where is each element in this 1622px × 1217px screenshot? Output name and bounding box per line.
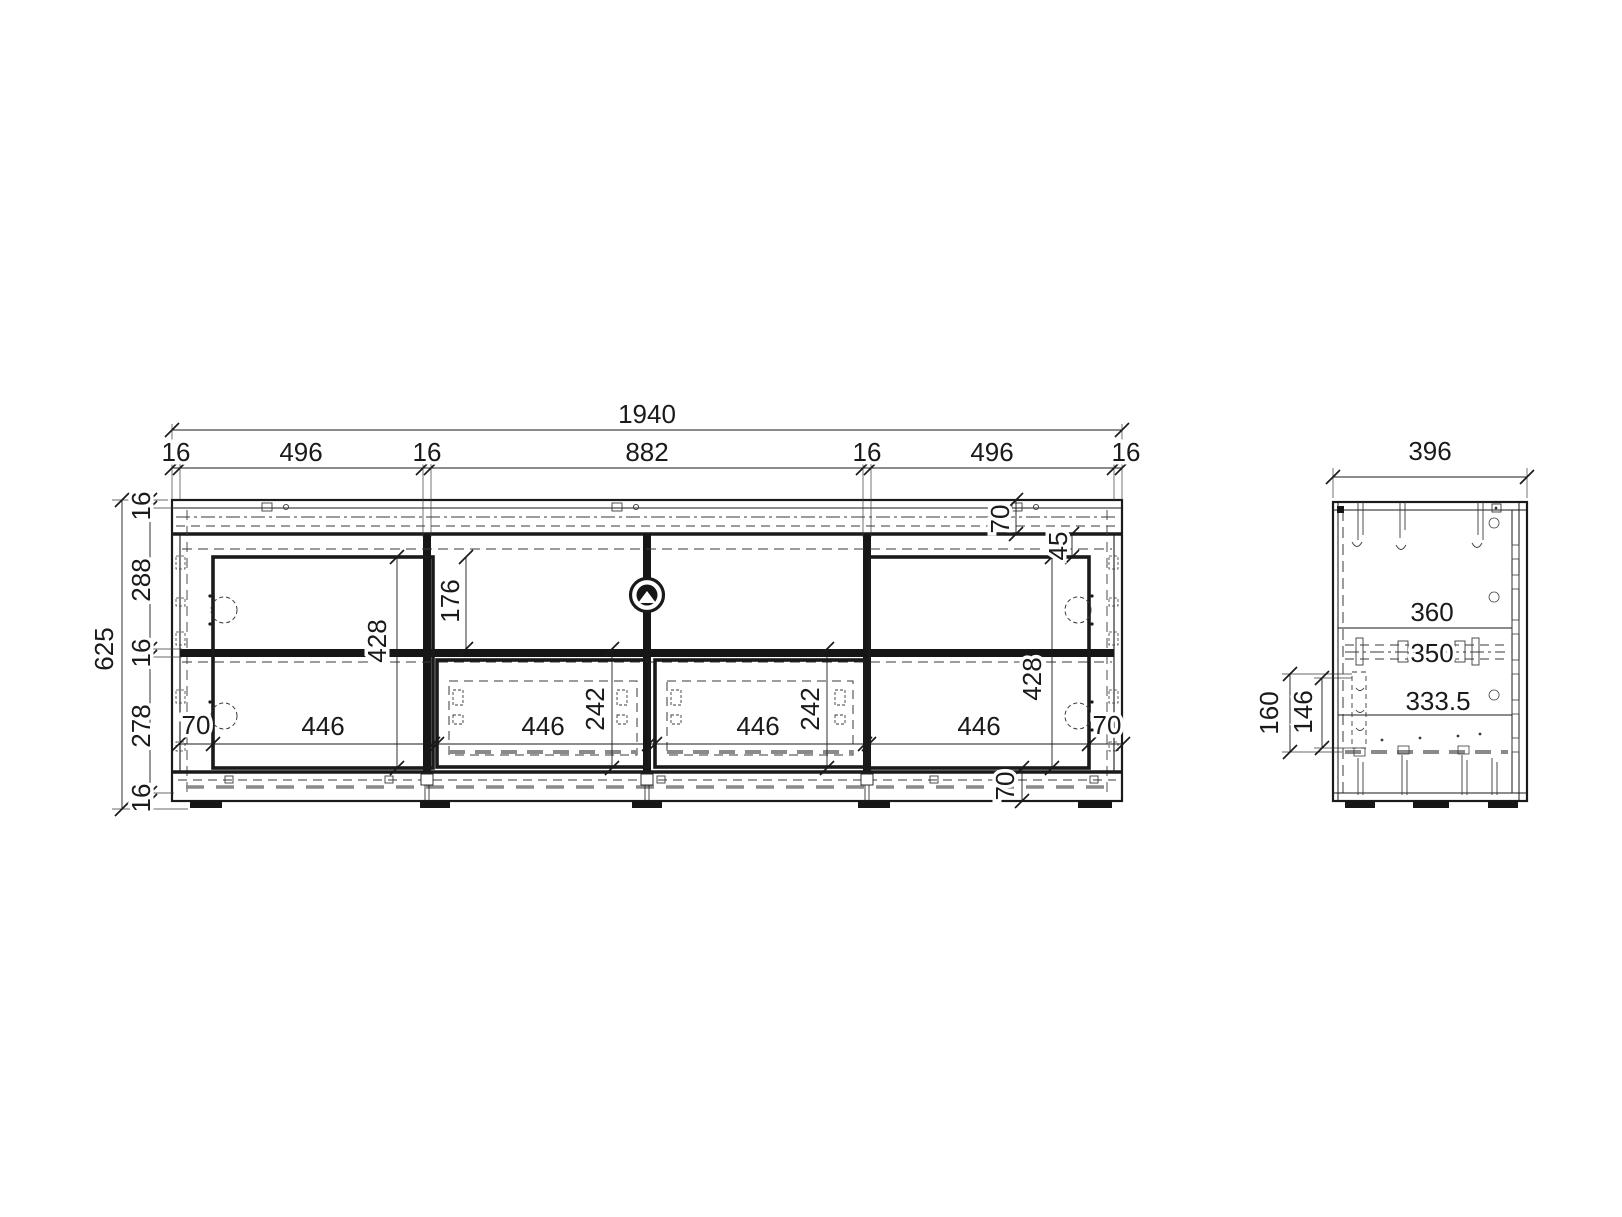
dim-label-front_view-width_chain-0: 16 [162, 437, 191, 467]
dim-label-front_view-overall_height: 625 [89, 627, 119, 670]
dim-label-front_view-width_chain-5: 496 [970, 437, 1013, 467]
dim-label-front_view-width_chain-4: 16 [853, 437, 882, 467]
dim-label-front_view-width_chain-3: 882 [625, 437, 668, 467]
dim-label-front_view-open_compartment_height: 176 [435, 579, 465, 622]
dim-label-front_view-door_top_offset: 45 [1043, 532, 1073, 561]
dim-label-front_view-height_chain-2: 16 [126, 639, 156, 668]
dim-label-front_view-width_chain-6: 16 [1112, 437, 1141, 467]
dim-label-front_view-door_heights-1: 428 [1017, 657, 1047, 700]
dim-label-front_view-door_heights-0: 428 [362, 619, 392, 662]
front-carcass [172, 500, 1122, 801]
furniture-drawing-svg: 1940164961688216496166251628816278161764… [0, 0, 1622, 1217]
dim-label-side_view-rail_depth: 350 [1410, 638, 1453, 668]
dim-label-front_view-left_edge_offset: 70 [182, 710, 211, 740]
dim-label-side_view-top_depth: 360 [1410, 597, 1453, 627]
side-feet [1345, 801, 1518, 808]
dim-label-front_view-height_chain-4: 16 [126, 784, 156, 813]
dim-label-front_view-top_rail_height: 70 [985, 505, 1015, 534]
dim-label-front_view-compartment_widths-1: 446 [521, 711, 564, 741]
dim-label-front_view-compartment_widths-0: 446 [301, 711, 344, 741]
dim-label-side_view-bracket_heights-0: 160 [1254, 691, 1284, 734]
technical-drawing-sheet: 1940164961688216496166251628816278161764… [0, 0, 1622, 1217]
dim-label-side_view-bracket_heights-1: 146 [1288, 690, 1318, 733]
dim-label-front_view-right_edge_offset: 70 [1093, 710, 1122, 740]
dim-label-front_view-width_chain-1: 496 [279, 437, 322, 467]
cable-grommet-icon [631, 579, 664, 612]
dim-label-side_view-inner_depth: 333.5 [1405, 686, 1470, 716]
dim-label-front_view-height_chain-0: 16 [126, 492, 156, 521]
dim-label-front_view-overall_width: 1940 [618, 399, 676, 429]
dim-label-front_view-compartment_widths-2: 446 [736, 711, 779, 741]
dim-label-front_view-height_chain-3: 278 [126, 704, 156, 747]
dim-label-front_view-compartment_widths-3: 446 [957, 711, 1000, 741]
dim-label-side_view-overall_depth: 396 [1408, 436, 1451, 466]
front-view [172, 500, 1122, 808]
dim-label-front_view-drawer_heights-1: 242 [795, 687, 825, 730]
dim-label-front_view-width_chain-2: 16 [413, 437, 442, 467]
dim-label-front_view-drawer_heights-0: 242 [580, 687, 610, 730]
dim-label-front_view-height_chain-1: 288 [126, 558, 156, 601]
middle-shelf [180, 649, 1114, 657]
dim-label-front_view-plinth_height: 70 [990, 772, 1020, 801]
